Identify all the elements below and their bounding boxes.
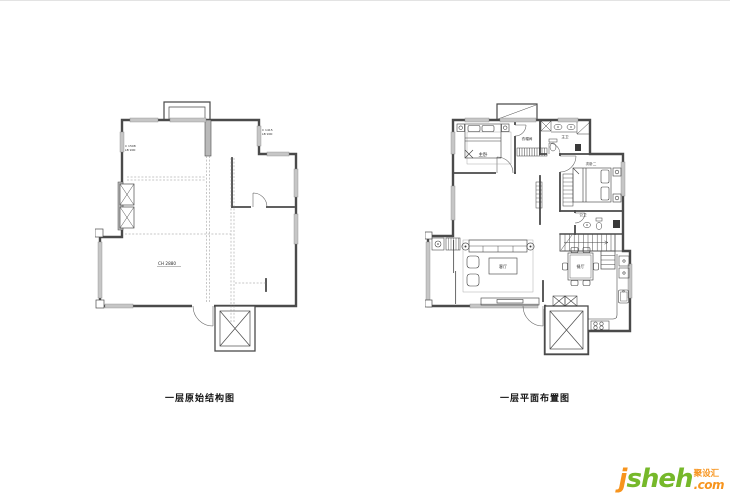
left-annotations: CH 2880 C 1508 LB 900 C 1415 LB 900: [125, 128, 273, 267]
left-dashed-lines: [125, 156, 266, 322]
left-plan-title: 一层原始结构图: [95, 391, 305, 404]
watermark-tld: .com: [694, 479, 724, 491]
right-floor-plan: 主卧 衣帽间 主卫 次卧二 公卫 客厅 餐厅: [425, 94, 637, 356]
room-label-master-bedroom: 主卧: [479, 151, 488, 158]
right-plan-title: 一层平面布置图: [428, 391, 642, 404]
right-windows: [426, 118, 632, 308]
left-door-gaps: [192, 204, 266, 309]
room-label-master-bath: 主卫: [561, 134, 569, 139]
living-room-furniture: [462, 182, 542, 305]
room-label-cloakroom: 衣帽间: [522, 136, 533, 141]
watermark-logo: jsheh 聚设汇 .com: [619, 467, 724, 492]
bedroom-two-furniture: [563, 168, 621, 206]
room-label-bedroom-two: 次卧二: [586, 161, 597, 166]
ceiling-height-label: CH 2880: [158, 261, 176, 266]
watermark-brand: jsheh: [619, 467, 693, 492]
left-elevator-shaft: [215, 306, 255, 351]
balcony-fixtures: [432, 238, 460, 250]
room-label-living-room: 客厅: [499, 263, 507, 269]
entry-cabinets: [553, 296, 577, 306]
left-floor-plan: CH 2880 C 1508 LB 900 C 1415 LB 900: [95, 94, 305, 356]
kitchen-fixtures: [588, 254, 629, 330]
public-bath-fixtures: [584, 218, 621, 230]
window-code: LB 900: [262, 132, 273, 136]
watermark-brand-rest: sheh: [626, 464, 692, 494]
room-label-public-bath: 公卫: [579, 212, 587, 217]
watermark-suffix: 聚设汇 .com: [694, 470, 724, 491]
right-walls-layer: [428, 104, 630, 354]
floor-plan-sheet: CH 2880 C 1508 LB 900 C 1415 LB 900: [0, 0, 730, 496]
right-elevator-shaft: [545, 306, 588, 354]
window-code: LB 900: [125, 148, 136, 152]
room-label-dining-room: 餐厅: [577, 263, 585, 269]
